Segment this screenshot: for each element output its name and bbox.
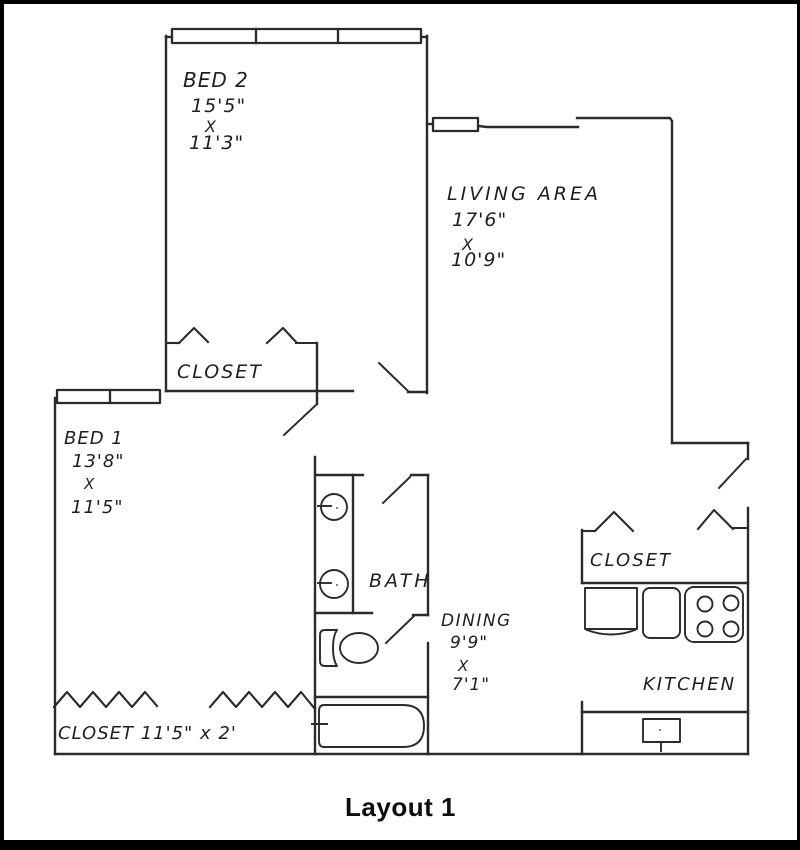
bath-fixtures [312,494,424,747]
vanity-sink-2 [318,570,348,598]
hall-closet-label: CLOSET [177,363,263,382]
living-label: LIVING AREA [447,185,601,204]
bed1-closet-accordion-doors [54,692,315,709]
stove-fixture [685,587,743,642]
bed2-dim-h: 11'3" [189,134,244,153]
kitchen-closet-bifold-doors [582,510,748,531]
living-dim-w: 17'6" [452,211,507,230]
dining-label: DINING [441,613,512,630]
bed1-window [57,390,160,403]
kitchen-fixtures [585,587,743,751]
living-walls [427,118,748,459]
bed2-label: BED 2 [183,70,249,90]
kitchen-closet-label: CLOSET [590,552,672,570]
stove-burner [724,596,739,611]
vanity-sink-1 [318,494,347,520]
counter-sink-fixture [643,719,680,751]
living-window [433,118,478,131]
bed1-door-swing [284,404,317,435]
bed1-dim-x: X [84,477,95,492]
bed2-door-swing [379,363,409,392]
bath-walls [315,457,428,754]
layout-caption: Layout 1 [4,792,797,823]
hall-closet-bifold-doors [166,328,317,343]
bed1-label: BED 1 [64,430,124,448]
dining-dim-h: 7'1" [452,677,490,694]
stove-burner [698,597,713,612]
bathtub-fixture [312,705,424,747]
stove-burner [724,622,739,637]
bed1-closet-label: CLOSET 11'5" x 2' [58,725,237,743]
refrigerator-fixture [585,588,637,635]
toilet-fixture [320,630,378,666]
dining-dim-w: 9'9" [450,635,488,652]
living-dim-h: 10'9" [451,251,506,270]
bed1-dim-w: 13'8" [72,453,125,471]
bed2-dim-w: 15'5" [191,97,246,116]
bath-label: BATH [369,572,432,591]
floor-plan-image: BED 2 15'5" X 11'3" LIVING AREA 17'6" X … [0,0,800,850]
bed2-window [172,29,421,43]
bed1-dim-h: 11'5" [71,499,124,517]
kitchen-entry-door-swing [719,459,746,488]
dining-dim-x: X [458,659,469,674]
bath-door-swing [383,477,410,503]
toilet-room-door-swing [386,616,414,643]
kitchen-sink-fixture [643,588,680,638]
kitchen-label: KITCHEN [643,676,736,694]
stove-burner [698,622,713,637]
